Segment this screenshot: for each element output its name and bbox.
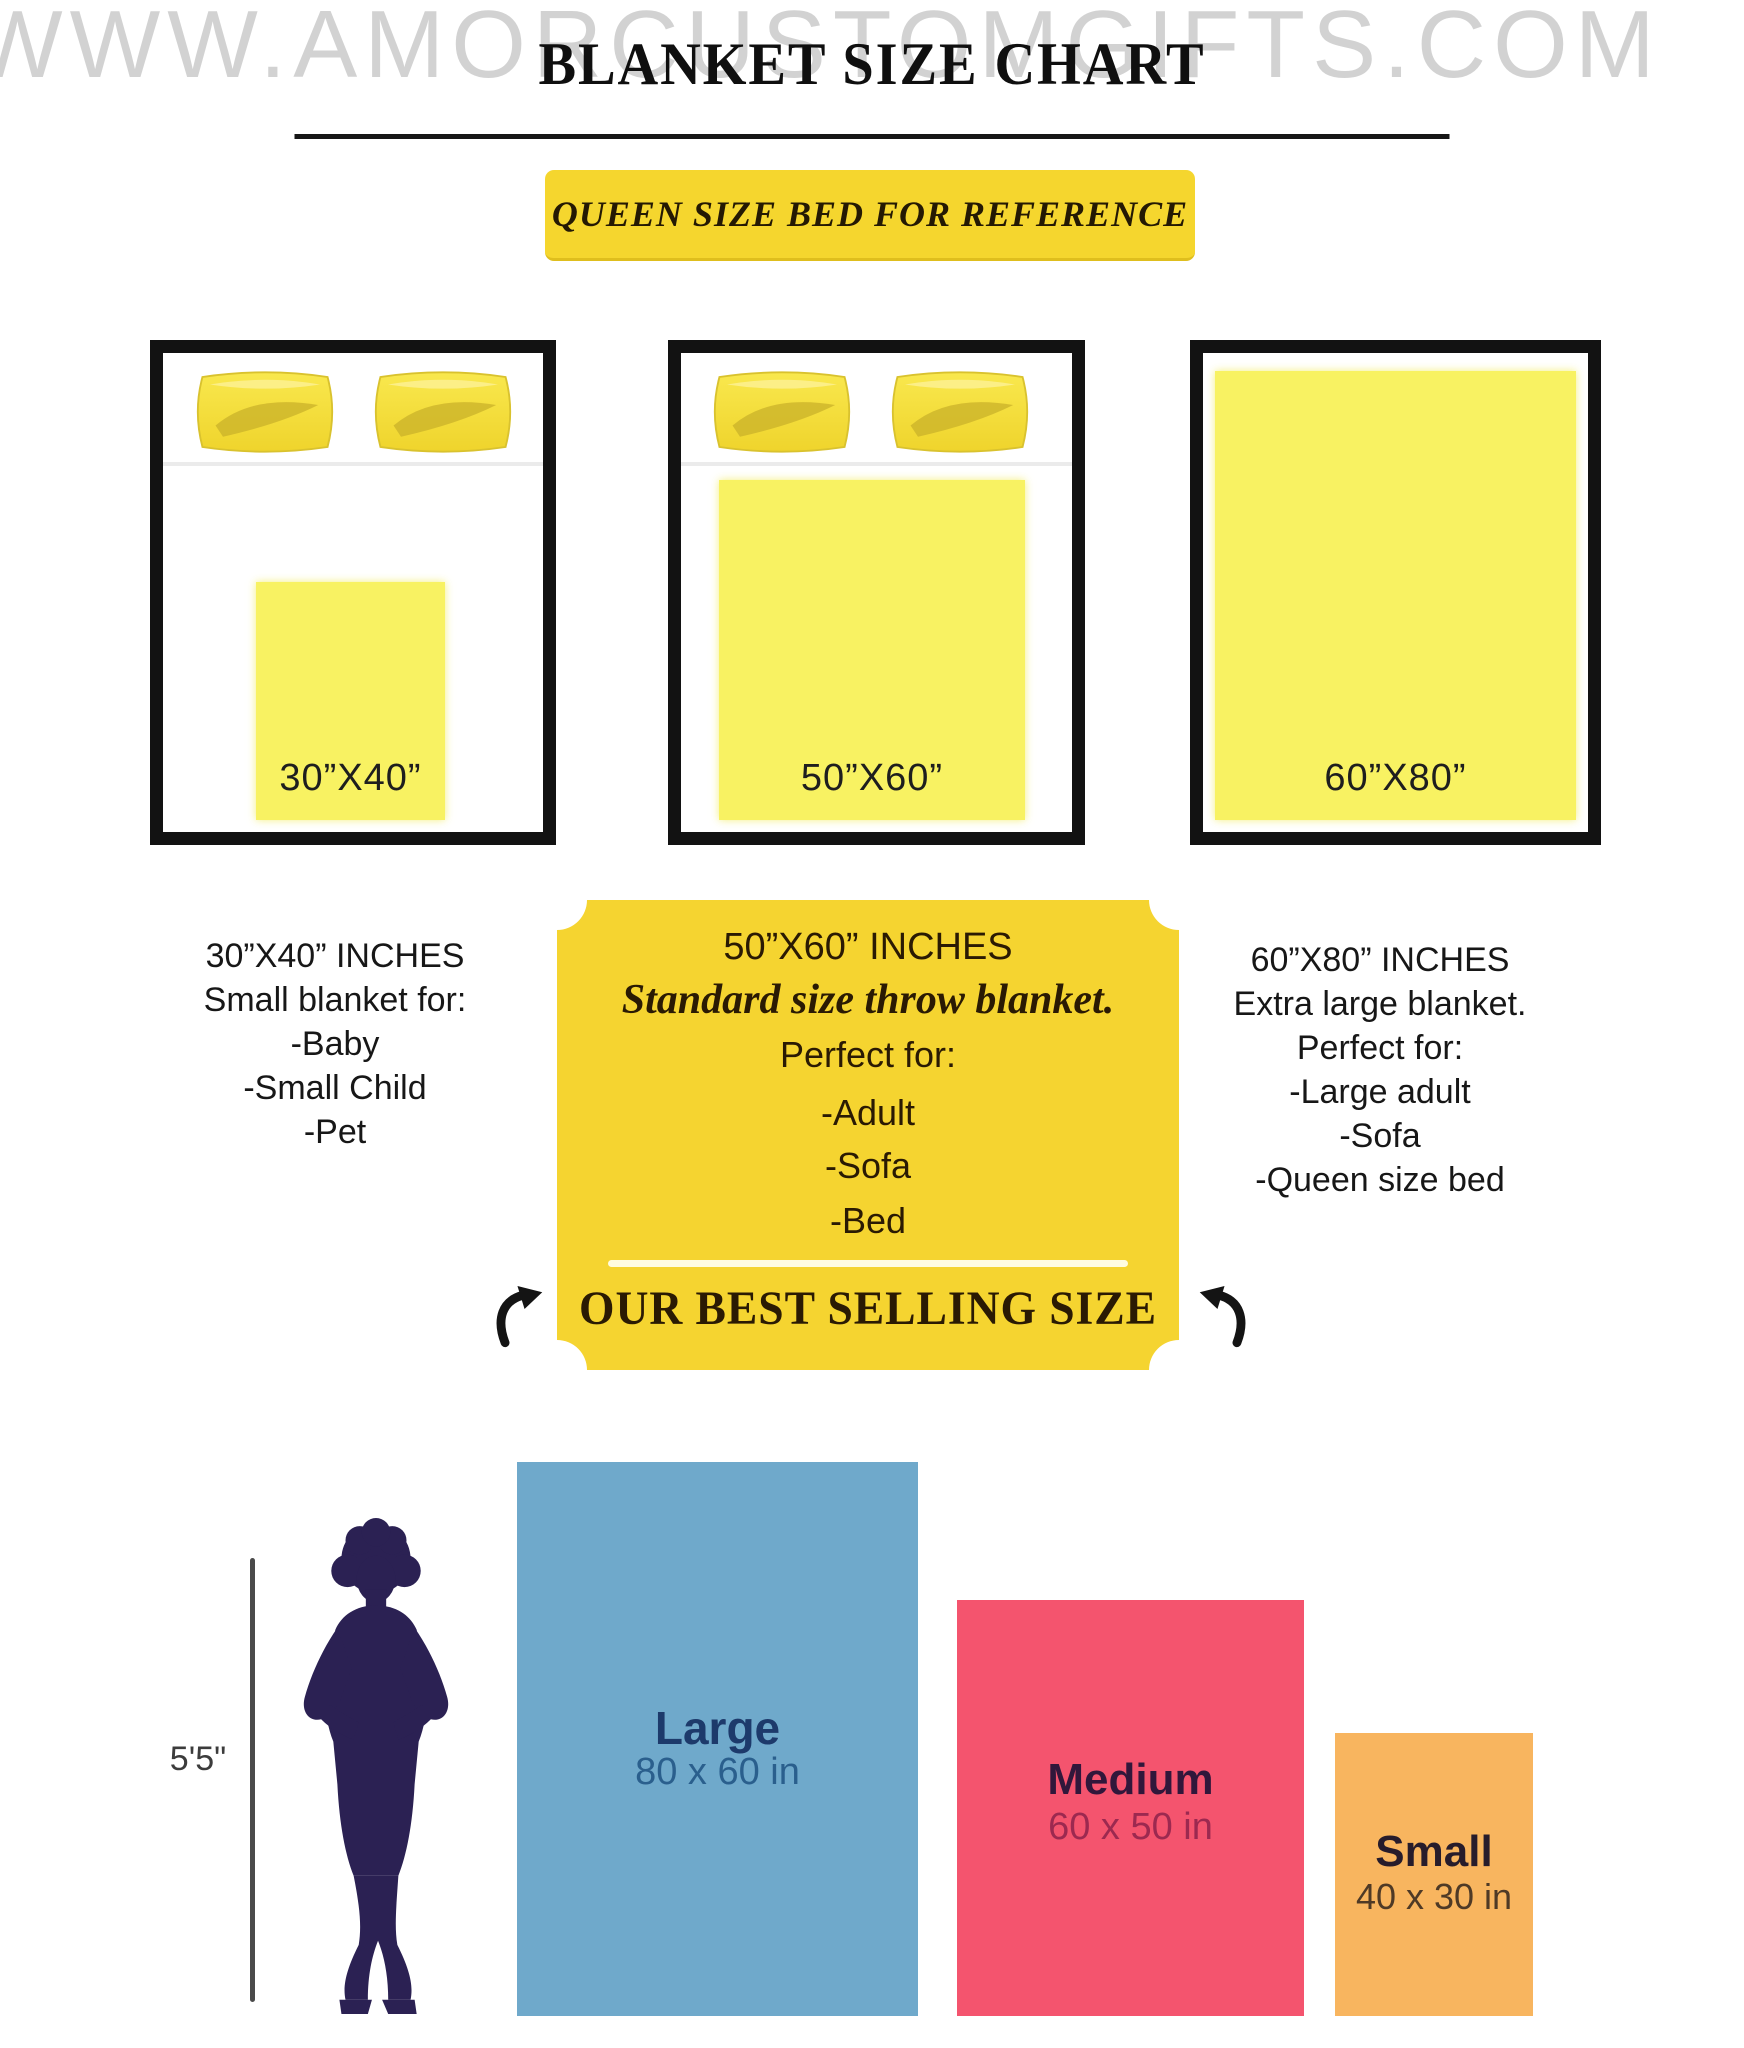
description-line: Extra large blanket. — [1180, 982, 1580, 1026]
height-label: 5'5" — [148, 1740, 248, 1779]
blanket-60x80: 60”X80” — [1215, 371, 1576, 820]
best-selling-size-label: OUR BEST SELLING SIZE — [573, 1281, 1164, 1336]
description-xl-blanket: 60”X80” INCHES Extra large blanket. Perf… — [1180, 938, 1580, 1202]
list-item: -Pet — [140, 1110, 530, 1154]
list-item: -Sofa — [557, 1145, 1179, 1187]
bed-diagram-medium: 50”X60” — [668, 340, 1085, 845]
ticket-subtitle: Standard size throw blanket. — [557, 976, 1179, 1024]
pillow-icon — [373, 366, 513, 458]
ticket-size-heading: 50”X60” INCHES — [557, 926, 1179, 969]
reference-badge-label: QUEEN SIZE BED FOR REFERENCE — [552, 193, 1188, 235]
title-underline — [295, 134, 1450, 139]
blanket-size-label: 50”X60” — [719, 757, 1025, 800]
ticket-divider — [608, 1260, 1128, 1267]
height-ruler-line — [250, 1558, 255, 2002]
bed-diagram-small: 30”X40” — [150, 340, 556, 845]
pillow-icon — [890, 366, 1030, 458]
blanket-30x40: 30”X40” — [256, 582, 445, 820]
curved-arrow-right-icon — [1192, 1286, 1250, 1348]
description-line: Perfect for: — [1180, 1026, 1580, 1070]
size-swatch-small: Small 40 x 30 in — [1335, 1733, 1533, 2016]
pillow-icon — [195, 366, 335, 458]
bed-sheet-line — [681, 462, 1072, 466]
size-name: Medium — [957, 1758, 1304, 1802]
size-swatch-large: Large 80 x 60 in — [517, 1462, 918, 2016]
list-item: -Bed — [557, 1200, 1179, 1242]
list-item: -Adult — [557, 1092, 1179, 1134]
description-line: Small blanket for: — [140, 978, 530, 1022]
curved-arrow-left-icon — [492, 1286, 550, 1348]
size-name: Small — [1335, 1830, 1533, 1874]
size-swatch-medium: Medium 60 x 50 in — [957, 1600, 1304, 2016]
size-dimensions: 60 x 50 in — [957, 1808, 1304, 1846]
pillow-icon — [712, 366, 852, 458]
size-heading: 30”X40” INCHES — [140, 934, 530, 978]
list-item: -Small Child — [140, 1066, 530, 1110]
best-seller-ticket: 50”X60” INCHES Standard size throw blank… — [557, 900, 1179, 1370]
blanket-size-label: 30”X40” — [256, 757, 445, 800]
ticket-perfect-for: Perfect for: — [557, 1034, 1179, 1076]
list-item: -Baby — [140, 1022, 530, 1066]
blanket-50x60: 50”X60” — [719, 480, 1025, 820]
page-title: BLANKET SIZE CHART — [52, 30, 1691, 99]
size-heading: 60”X80” INCHES — [1180, 938, 1580, 982]
list-item: -Sofa — [1180, 1114, 1580, 1158]
size-dimensions: 80 x 60 in — [517, 1753, 918, 1791]
blanket-size-chart-infographic: WWW.AMORCUSTOMGIFTS.COM BLANKET SIZE CHA… — [0, 0, 1744, 2048]
woman-silhouette-icon — [272, 1518, 480, 2016]
reference-badge: QUEEN SIZE BED FOR REFERENCE — [545, 170, 1195, 261]
description-small-blanket: 30”X40” INCHES Small blanket for: -Baby … — [140, 934, 530, 1154]
list-item: -Queen size bed — [1180, 1158, 1580, 1202]
size-name: Large — [517, 1705, 918, 1751]
size-dimensions: 40 x 30 in — [1335, 1879, 1533, 1915]
bed-sheet-line — [163, 462, 543, 466]
blanket-size-label: 60”X80” — [1215, 757, 1576, 800]
list-item: -Large adult — [1180, 1070, 1580, 1114]
bed-diagram-large: 60”X80” — [1190, 340, 1601, 845]
